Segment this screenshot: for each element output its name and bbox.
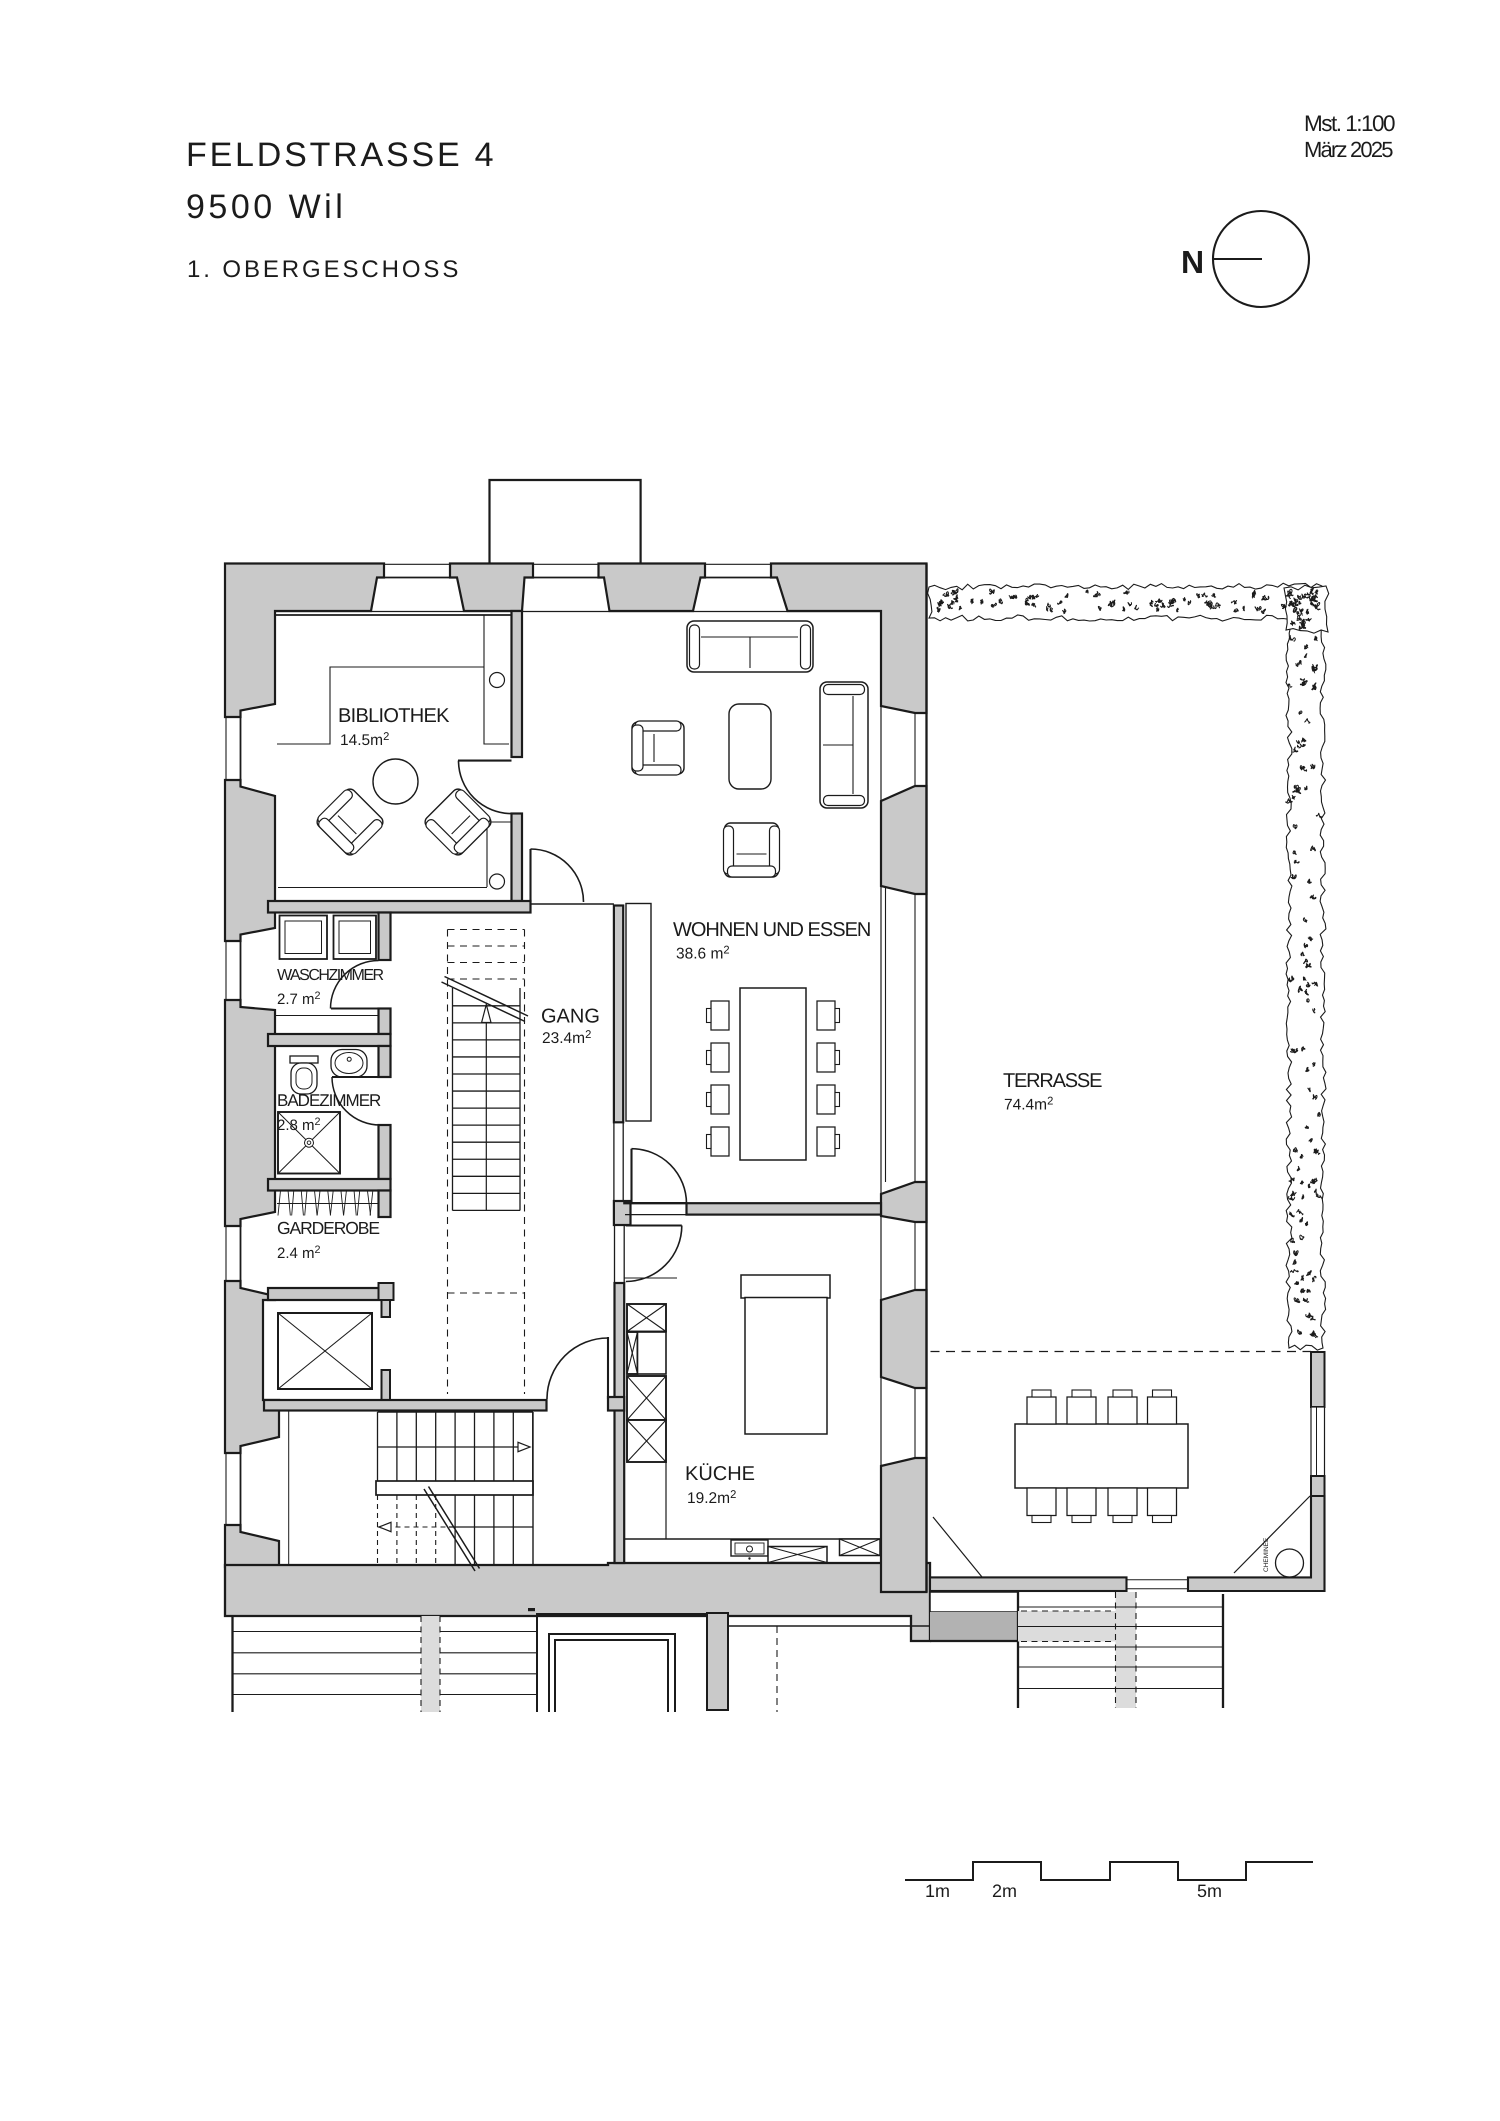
svg-text:TERRASSE: TERRASSE	[1003, 1070, 1102, 1092]
svg-text:9500 Wil: 9500 Wil	[186, 188, 346, 226]
svg-text:März 2025: März 2025	[1304, 137, 1393, 162]
svg-text:74.4m2: 74.4m2	[1004, 1096, 1053, 1114]
svg-text:1m: 1m	[925, 1881, 950, 1901]
svg-text:WOHNEN UND ESSEN: WOHNEN UND ESSEN	[673, 919, 870, 941]
svg-text:23.4m2: 23.4m2	[542, 1029, 591, 1047]
svg-text:BIBLIOTHEK: BIBLIOTHEK	[338, 705, 450, 727]
svg-text:GARDEROBE: GARDEROBE	[277, 1218, 379, 1238]
svg-text:FELDSTRASSE 4: FELDSTRASSE 4	[186, 136, 496, 174]
svg-text:2.7 m2: 2.7 m2	[277, 990, 321, 1008]
svg-text:14.5m2: 14.5m2	[340, 731, 389, 749]
svg-text:2.4 m2: 2.4 m2	[277, 1244, 321, 1262]
svg-text:CHEMINEE: CHEMINEE	[1263, 1537, 1270, 1572]
svg-text:BADEZIMMER: BADEZIMMER	[277, 1091, 381, 1110]
svg-text:Mst. 1:100: Mst. 1:100	[1304, 111, 1395, 136]
svg-text:2.8 m2: 2.8 m2	[277, 1116, 321, 1134]
svg-text:19.2m2: 19.2m2	[687, 1489, 736, 1507]
svg-text:2m: 2m	[992, 1881, 1017, 1901]
svg-text:1. OBERGESCHOSS: 1. OBERGESCHOSS	[187, 256, 461, 283]
svg-text:38.6 m2: 38.6 m2	[676, 945, 730, 963]
svg-text:KÜCHE: KÜCHE	[685, 1463, 755, 1485]
svg-text:GANG: GANG	[541, 1006, 600, 1028]
svg-text:WASCHZIMMER: WASCHZIMMER	[277, 967, 384, 984]
svg-text:N: N	[1181, 244, 1204, 280]
svg-text:5m: 5m	[1197, 1881, 1222, 1901]
